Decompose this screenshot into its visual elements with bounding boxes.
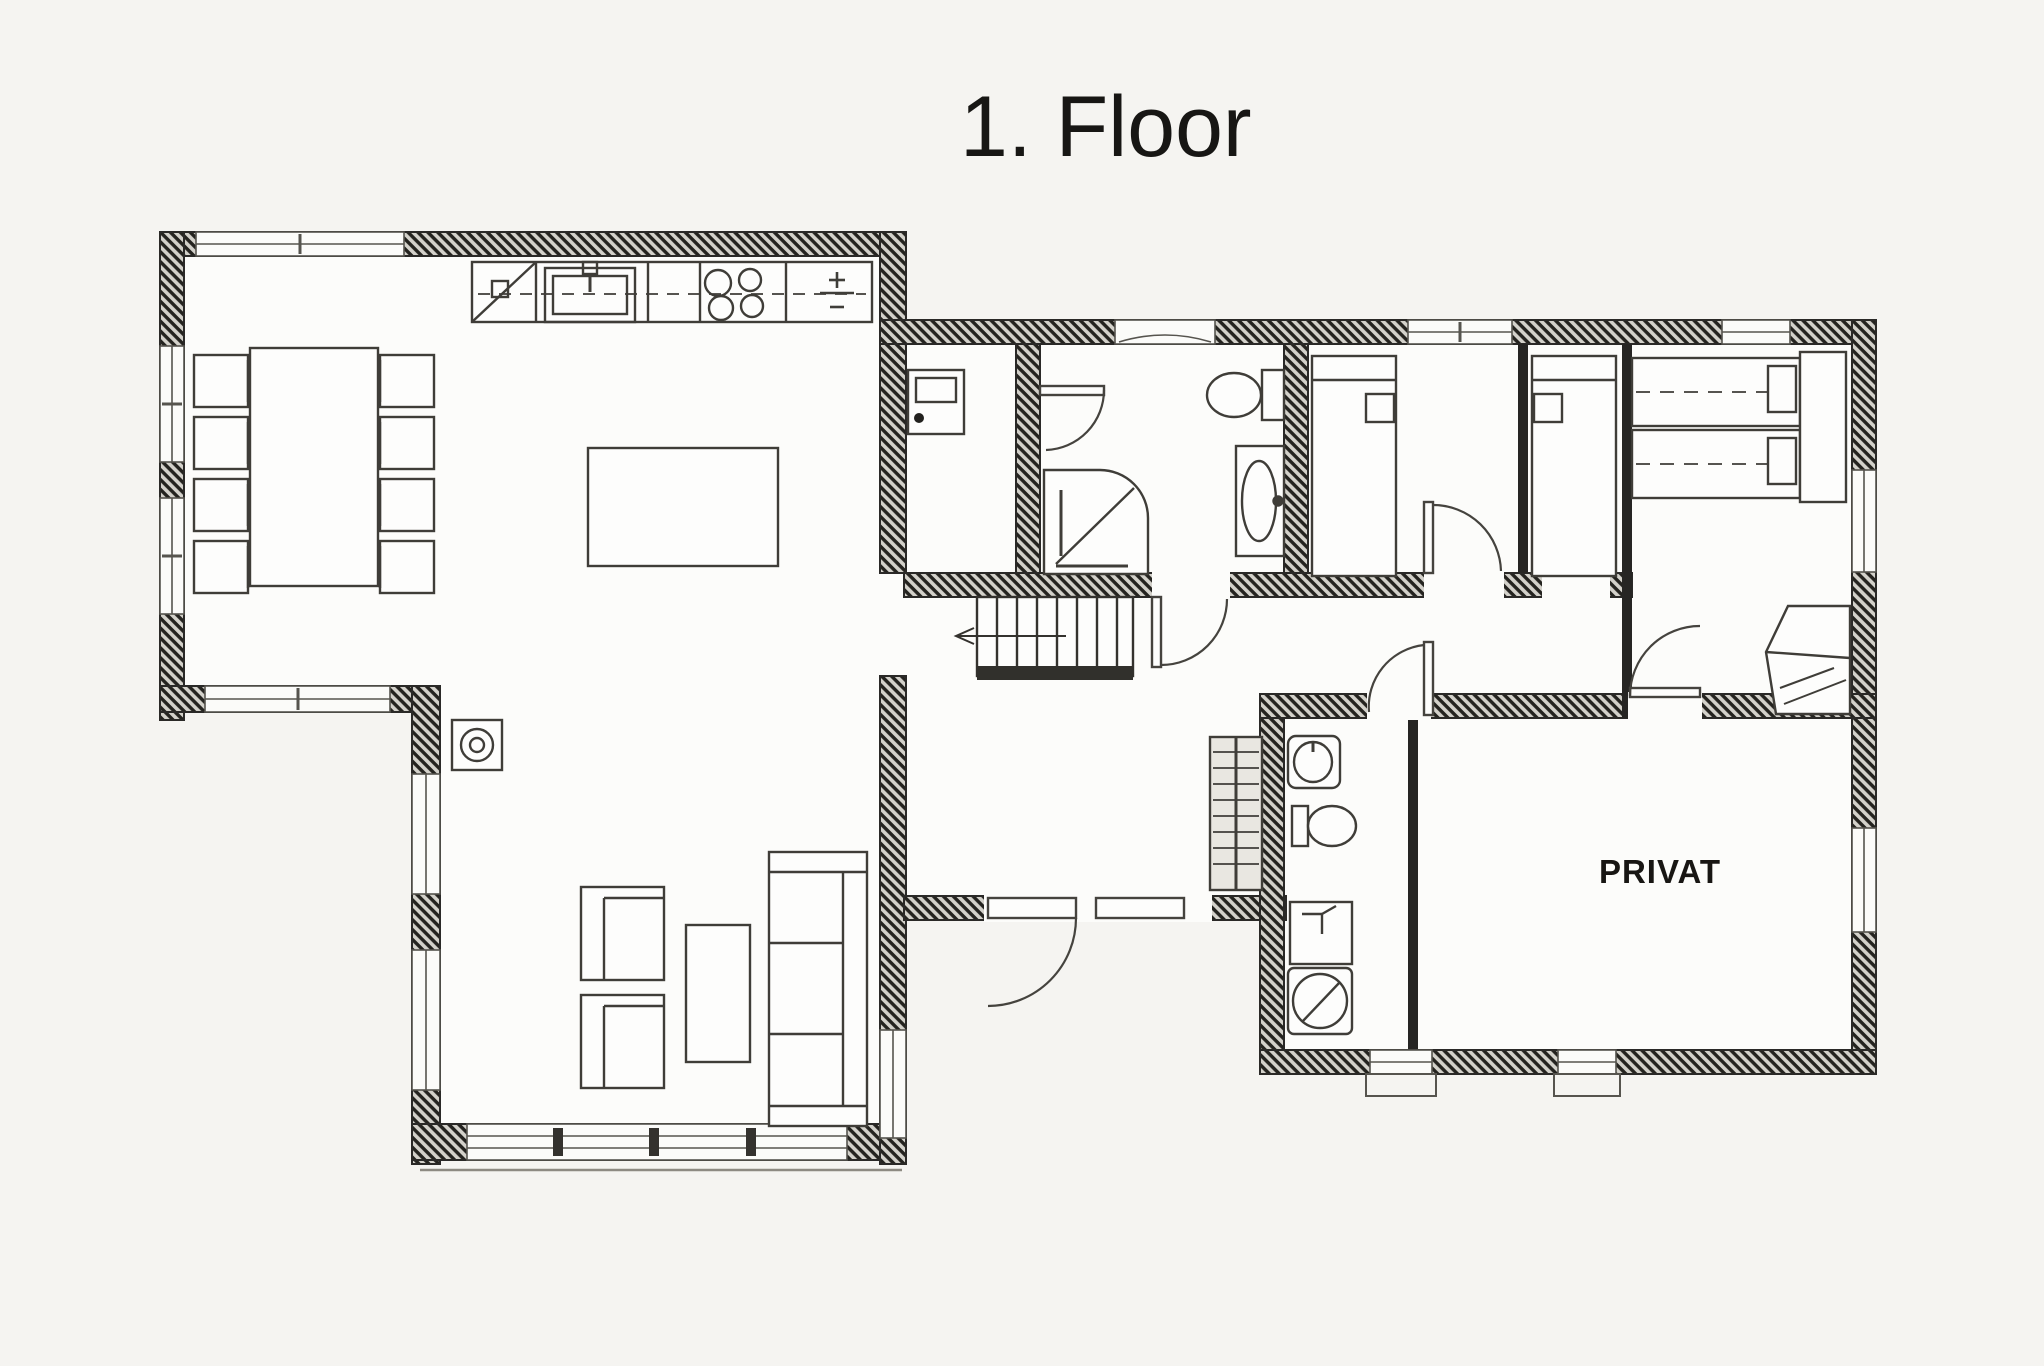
water-heater-icon bbox=[1290, 902, 1352, 964]
window-nook-bottom bbox=[205, 686, 390, 712]
porch-steps bbox=[1366, 1074, 1620, 1096]
washbasin-icon bbox=[1288, 736, 1340, 788]
washbasin-icon bbox=[1236, 446, 1284, 556]
toilet-icon bbox=[1207, 370, 1284, 420]
stairs-icon bbox=[956, 597, 1133, 680]
window-master-top bbox=[1722, 320, 1790, 344]
coat-closet-icon bbox=[1210, 737, 1262, 890]
window-hall-top bbox=[1408, 320, 1512, 344]
wall-master-left bbox=[1622, 344, 1632, 718]
dining-chair-icon bbox=[380, 541, 434, 593]
coffee-table-icon bbox=[686, 925, 750, 1062]
window-living-bottom bbox=[467, 1124, 847, 1160]
opening-private-door bbox=[1367, 692, 1431, 720]
door-swing-icon bbox=[988, 918, 1076, 1006]
wall-dining-left bbox=[160, 232, 184, 720]
entry-cabinet-icon bbox=[908, 370, 964, 434]
dining-chair-icon bbox=[194, 417, 248, 469]
window-dining-left-1 bbox=[160, 346, 184, 462]
wall-bedroom-partition bbox=[1518, 344, 1528, 573]
porch-step-icon bbox=[1554, 1074, 1620, 1096]
dining-chair-icon bbox=[380, 417, 434, 469]
armchair-icon bbox=[581, 887, 664, 980]
floor-plan-drawing bbox=[0, 0, 2044, 1366]
single-bed-icon bbox=[1532, 356, 1616, 576]
window-dining-left-2 bbox=[160, 498, 184, 614]
porch-step-icon bbox=[1366, 1074, 1436, 1096]
wall-private-bath-left bbox=[1260, 718, 1284, 1050]
window-private-right bbox=[1852, 828, 1876, 932]
window-master-right bbox=[1852, 470, 1876, 572]
dining-chair-icon bbox=[380, 355, 434, 407]
window-living-right bbox=[880, 1030, 906, 1138]
single-bed-icon bbox=[1312, 356, 1396, 576]
window-bath-top bbox=[1115, 320, 1215, 344]
washing-machine-icon bbox=[1288, 968, 1352, 1034]
opening-bedroom1-door bbox=[1424, 571, 1504, 599]
dining-chair-icon bbox=[194, 541, 248, 593]
wall-private-bath-right bbox=[1408, 718, 1418, 1050]
private-room-label: PRIVAT bbox=[1592, 853, 1728, 891]
opening-hall-door bbox=[1152, 571, 1230, 599]
floor-plan-page: 1. Floor PRIVAT bbox=[0, 0, 2044, 1366]
window-living-left-2 bbox=[412, 950, 440, 1090]
dining-chair-icon bbox=[194, 479, 248, 531]
wall-mid-band bbox=[904, 573, 1632, 597]
window-top-dining bbox=[196, 232, 404, 256]
wall-kitchen-right bbox=[880, 232, 906, 573]
window-private-bottom-1 bbox=[1370, 1050, 1432, 1074]
double-bed-icon bbox=[1632, 352, 1846, 502]
wall-living-left bbox=[412, 686, 440, 1164]
kitchen-island-icon bbox=[588, 448, 778, 566]
kitchen-counter bbox=[472, 262, 872, 322]
window-private-bottom-2 bbox=[1558, 1050, 1616, 1074]
wall-entry-right bbox=[1016, 344, 1040, 573]
armchair-icon bbox=[581, 995, 664, 1088]
wall-bath-right bbox=[1284, 344, 1308, 573]
dining-chair-icon bbox=[194, 355, 248, 407]
dining-table-icon bbox=[250, 348, 378, 586]
floor-private-wing bbox=[1272, 704, 1868, 1064]
sofa-icon bbox=[769, 852, 867, 1126]
toilet-icon bbox=[1292, 806, 1356, 846]
page-title: 1. Floor bbox=[960, 78, 1320, 177]
window-living-left-1 bbox=[412, 774, 440, 894]
dining-chair-icon bbox=[380, 479, 434, 531]
shower-icon bbox=[1044, 470, 1148, 574]
wood-stove-icon bbox=[452, 720, 502, 770]
